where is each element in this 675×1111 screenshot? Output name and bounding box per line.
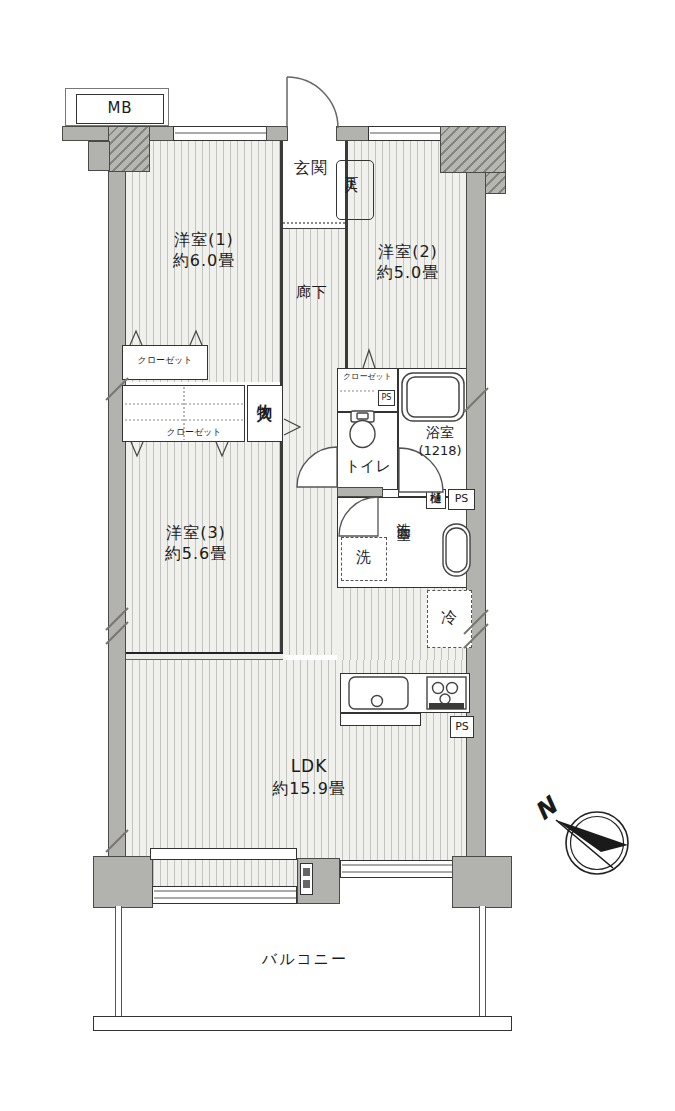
corner-top-left	[108, 126, 150, 172]
balcony-window-right	[340, 860, 453, 878]
corner-top-right	[440, 126, 506, 173]
ldk-name: LDK	[291, 756, 328, 776]
closet1-label: クローゼット	[123, 355, 207, 367]
room1-name: 洋室(1)	[174, 230, 234, 249]
toilet-room	[337, 412, 398, 490]
ldk-size: 約15.9畳	[272, 779, 346, 798]
bath-size: (1218)	[418, 443, 461, 458]
ps3-label: PS	[450, 720, 474, 734]
mb-label: MB	[76, 99, 164, 119]
shoebox-outline	[336, 160, 374, 220]
step-vent-box	[300, 863, 313, 895]
hallway-label: 廊下	[284, 283, 340, 303]
mb-step	[88, 141, 110, 171]
balcony-label: バルコニー	[240, 950, 370, 970]
closet2-label: クローゼット	[152, 427, 236, 439]
closet3-label: クローゼット	[338, 372, 397, 382]
genkan-hall-line	[283, 228, 345, 229]
compass-north-label: N	[529, 790, 564, 826]
room2-name: 洋室(2)	[378, 242, 438, 261]
room3-size: 約5.6畳	[165, 544, 227, 563]
genkan-label: 玄関	[283, 158, 339, 179]
entrance-door-arc	[287, 77, 338, 128]
top-window-1	[173, 126, 268, 141]
room2-label: 洋室(2) 約5.0畳	[352, 242, 464, 284]
kitchen-counter-front	[340, 713, 421, 726]
gutter-label: 樋	[426, 492, 446, 506]
ps2-label: PS	[448, 492, 475, 506]
room1-size: 約6.0畳	[173, 251, 235, 270]
ldk-label: LDK 約15.9畳	[244, 755, 374, 800]
balcony-slab	[93, 1016, 512, 1031]
wall-stub-toilet	[337, 487, 383, 497]
balcony-window-left	[152, 886, 297, 904]
washer-label: 洗	[341, 548, 387, 568]
top-wall-mid	[266, 126, 288, 141]
storage-label: 物入	[254, 392, 274, 396]
room3-ldk-divider	[126, 652, 283, 660]
ldk-window-sill	[150, 848, 297, 860]
left-wall	[108, 171, 126, 908]
room2-size: 約5.0畳	[377, 263, 439, 282]
balcony-rail-right	[479, 906, 486, 1016]
bath-label: 浴室 (1218)	[412, 423, 468, 460]
room1-label: 洋室(1) 約6.0畳	[148, 230, 260, 272]
genkan-step-line	[283, 222, 345, 224]
compass-icon: N	[529, 790, 628, 874]
top-window-2	[368, 126, 441, 141]
fridge-label: 冷	[427, 608, 472, 629]
washroom-label: 洗面室	[395, 512, 413, 518]
room3-label: 洋室(3) 約5.6畳	[140, 523, 252, 565]
pillar-bottom-left	[93, 856, 153, 908]
bath-name: 浴室	[426, 424, 454, 440]
toilet-label: トイレ	[339, 457, 397, 477]
hallway-floor-lower	[283, 368, 337, 655]
pillar-bottom-right	[452, 856, 512, 908]
top-wall-right-a	[336, 126, 369, 141]
closet3-ps-label: PS	[378, 393, 395, 403]
right-wall	[466, 172, 486, 862]
floor-plan: N MB 玄関 下足入 洋室(1) 約6.0畳 洋室(2) 約5.0畳 廊下 ク…	[0, 0, 675, 1111]
room3-name: 洋室(3)	[166, 523, 226, 542]
kitchen-counter	[340, 673, 470, 713]
balcony-rail-left	[115, 906, 122, 1016]
